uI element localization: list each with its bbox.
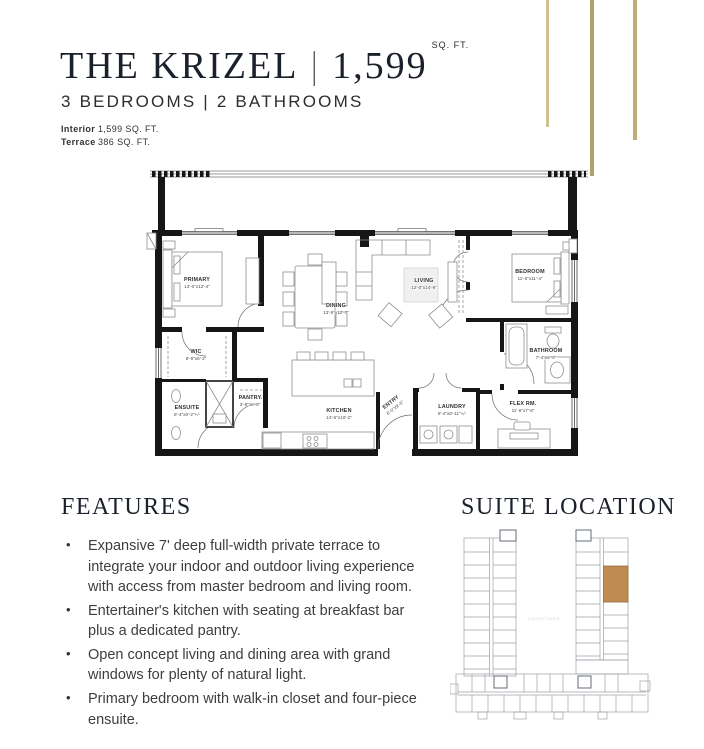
terrace-door-primary — [195, 229, 223, 232]
floor-plan-drawing: PRIMARY13'-0"x12'-4" WIC8'-8"x6'-2" ENSU… — [138, 162, 602, 488]
plan-area: 1,599 — [332, 45, 428, 87]
svg-text:ENSUITE: ENSUITE — [175, 405, 200, 411]
svg-text:PANTRY: PANTRY — [239, 395, 262, 401]
plan-subtitle: 3 BEDROOMS | 2 BATHROOMS — [61, 92, 364, 112]
svg-text:WIC: WIC — [190, 349, 201, 355]
feature-item: Primary bedroom with walk-in closet and … — [64, 689, 426, 730]
terrace-edge — [150, 171, 588, 177]
courtyard-label: COURTYARD — [528, 617, 561, 621]
svg-text:DINING: DINING — [326, 303, 346, 309]
feature-item: Open concept living and dining area with… — [64, 645, 426, 686]
stair-core — [500, 530, 516, 541]
svg-text:11'-6"x7'-6": 11'-6"x7'-6" — [512, 408, 535, 413]
room-label-flex: FLEX RM.11'-6"x7'-6" — [510, 401, 537, 413]
plan-name: THE KRIZEL — [60, 45, 298, 87]
room-label-entry: ENTRY6'-0"x9'-6" — [381, 394, 405, 416]
features-list: Expansive 7' deep full-width private ter… — [64, 536, 426, 733]
room-label-bathroom: BATHROOM7'-4"x5'-0" — [530, 348, 563, 360]
suite-location-title: SUITE LOCATION — [461, 494, 676, 521]
stair-core — [578, 676, 591, 688]
furniture — [147, 233, 577, 449]
svg-text:13'-9"x12'-7": 13'-9"x12'-7" — [323, 310, 349, 315]
interior-stat: Interior1,599 SQ. FT. — [61, 124, 159, 134]
svg-text:5'-4"x8'-11"+/-: 5'-4"x8'-11"+/- — [438, 411, 467, 416]
svg-text:13'-0"x12'-4": 13'-0"x12'-4" — [184, 284, 210, 289]
features-title: FEATURES — [61, 494, 192, 521]
feature-item: Entertainer's kitchen with seating at br… — [64, 601, 426, 642]
svg-text:8'-4"x9'-2"+/-: 8'-4"x9'-2"+/- — [174, 412, 201, 417]
svg-text:7'-4"x5'-0": 7'-4"x5'-0" — [536, 355, 557, 360]
room-label-laundry: LAUNDRY5'-4"x8'-11"+/- — [438, 404, 467, 416]
room-label-ensuite: ENSUITE8'-4"x9'-2"+/- — [174, 405, 201, 417]
room-label-pantry: PANTRY3'-6"x6'-0" — [239, 395, 262, 407]
plan-area-unit: SQ. FT. — [432, 40, 470, 50]
terrace-stat: Terrace386 SQ. FT. — [61, 137, 159, 147]
stair-core — [576, 530, 591, 541]
svg-text:KITCHEN: KITCHEN — [326, 408, 351, 414]
accent-bar-3 — [633, 0, 637, 140]
svg-text:BEDROOM: BEDROOM — [515, 269, 545, 275]
room-label-kitchen: KITCHEN14'-6"x10'-2" — [326, 408, 352, 420]
room-label-wic: WIC8'-8"x6'-2" — [186, 349, 207, 361]
flyer-page: THE KRIZEL|1,599SQ. FT. 3 BEDROOMS | 2 B… — [0, 0, 704, 749]
svg-text:14'-6"x10'-2": 14'-6"x10'-2" — [326, 415, 352, 420]
svg-text:PRIMARY: PRIMARY — [184, 277, 210, 283]
accent-bar-2 — [590, 0, 594, 176]
svg-text:FLEX RM.: FLEX RM. — [510, 401, 537, 407]
terrace-door-living — [398, 229, 426, 232]
accent-bar-1 — [546, 0, 549, 127]
svg-text:12'-0"x14'-9": 12'-0"x14'-9" — [411, 285, 437, 290]
highlighted-suite — [604, 566, 629, 602]
svg-text:LAUNDRY: LAUNDRY — [438, 404, 466, 410]
feature-item: Expansive 7' deep full-width private ter… — [64, 536, 426, 598]
suite-key-plan: COURTYARD — [450, 528, 655, 733]
building-outline — [450, 538, 650, 719]
svg-text:3'-6"x6'-0": 3'-6"x6'-0" — [240, 402, 261, 407]
title-separator: | — [313, 44, 318, 88]
stair-core — [494, 676, 507, 688]
svg-text:8'-8"x6'-2": 8'-8"x6'-2" — [186, 356, 207, 361]
svg-text:LIVING: LIVING — [414, 278, 433, 284]
svg-text:BATHROOM: BATHROOM — [530, 348, 563, 354]
area-stats: Interior1,599 SQ. FT. Terrace386 SQ. FT. — [61, 124, 159, 150]
svg-text:11'-6"x11'-4": 11'-6"x11'-4" — [517, 276, 542, 281]
page-title: THE KRIZEL|1,599SQ. FT. — [60, 40, 469, 88]
